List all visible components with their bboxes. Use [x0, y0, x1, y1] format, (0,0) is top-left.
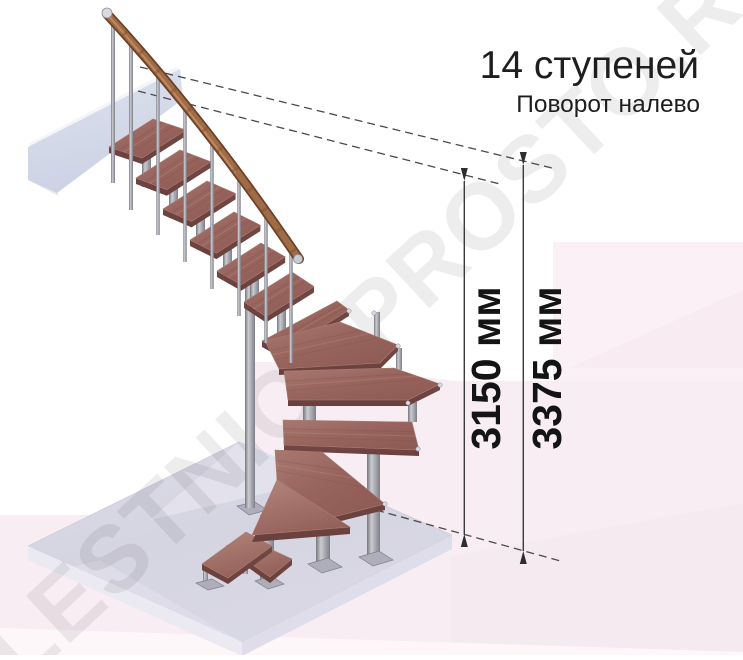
- svg-text:3150 мм: 3150 мм: [463, 286, 509, 449]
- svg-text:3375 мм: 3375 мм: [524, 286, 570, 449]
- svg-text:Поворот налево: Поворот налево: [516, 91, 700, 118]
- svg-text:14 ступеней: 14 ступеней: [480, 44, 699, 87]
